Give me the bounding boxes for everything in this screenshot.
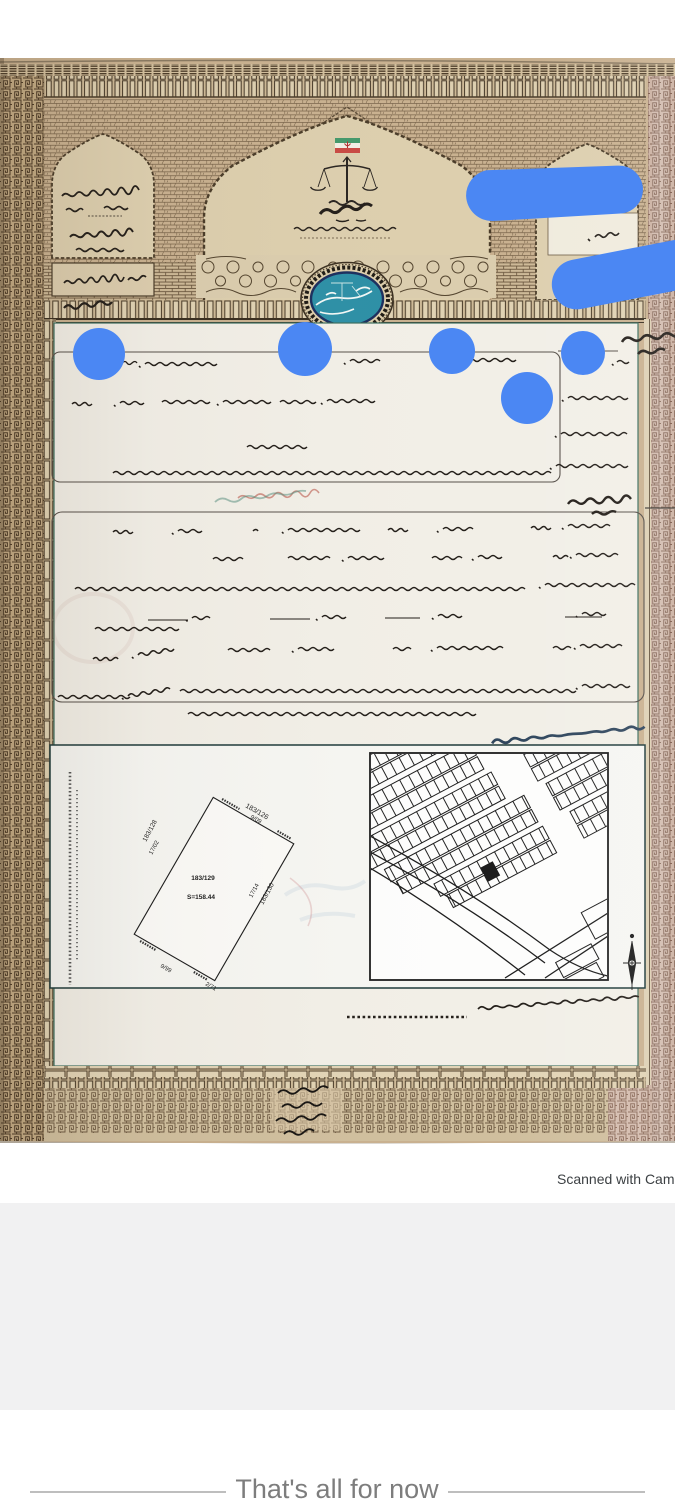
svg-text:That's all for now: That's all for now <box>235 1474 439 1500</box>
svg-text:Scanned with CamScanner: Scanned with CamScanner <box>557 1171 675 1187</box>
